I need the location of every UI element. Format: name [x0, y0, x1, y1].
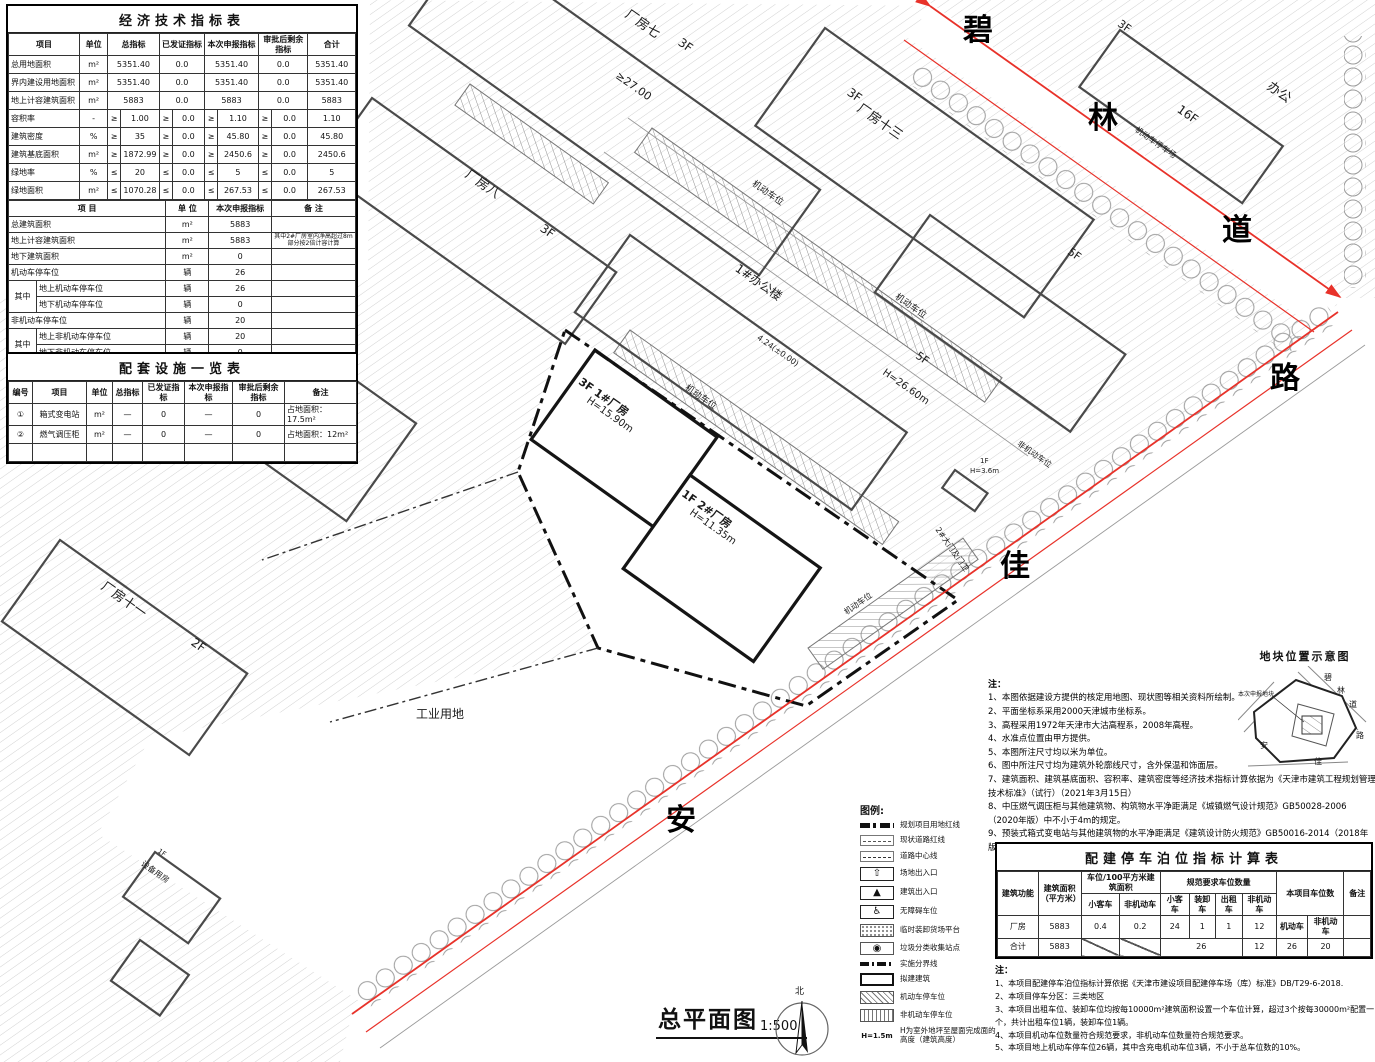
legend-symbol-dock-icon [860, 924, 894, 937]
table-cell: 辆 [166, 297, 209, 313]
table-cell: — [185, 404, 233, 426]
table-cell: 总建筑面积 [9, 217, 166, 233]
table-cell: 0.0 [271, 164, 308, 182]
table-cell: m² [80, 74, 108, 92]
table-cell: 0.0 [172, 128, 204, 146]
table-cell: ≥ [205, 110, 218, 128]
table-cell [271, 265, 355, 281]
table-cell: 0.0 [258, 74, 308, 92]
table-cell [271, 217, 355, 233]
note-item: 1、本项目配建停车泊位指标计算依据《天津市建设项目配建停车场（库）标准》DB/T… [995, 978, 1375, 991]
table-cell [113, 444, 143, 462]
table-cell: 0.0 [258, 92, 308, 110]
legend-item-label: 机动车停车位 [900, 993, 1002, 1002]
table-header-cell: 编号 [9, 382, 33, 404]
legend-symbol-centerline-icon [860, 851, 894, 862]
table-row: 建筑功能建筑面积（平方米）车位/100平方米建筑面积规范要求车位数量本项目车位数… [998, 872, 1371, 894]
table-row: 绿地面积m²≤1070.28≤0.0≤267.53≤0.0267.53 [9, 182, 356, 200]
table-cell [1120, 938, 1161, 956]
table-cell: 267.53 [308, 182, 356, 200]
table-cell: 5 [308, 164, 356, 182]
legend-item: 道路中心线 [860, 851, 1002, 862]
table-header-cell: 已发证指标 [159, 34, 204, 56]
table-row: 非机动车停车位辆20 [9, 313, 356, 329]
legend-items: 规划项目用地红线现状道路红线道路中心线⇧场地出入口▲建筑出入口♿无障碍车位临时装… [860, 821, 1002, 1045]
legend-item-label: 拟建建筑 [900, 975, 1002, 984]
table-cell: 12 [1242, 938, 1277, 956]
table-cell: 燃气调压柜 [33, 426, 87, 444]
table-header-cell: 合计 [308, 34, 356, 56]
map-label: 佳 [1314, 758, 1322, 766]
table-row: 绿地率%≤20≤0.0≤5≤0.05 [9, 164, 356, 182]
table-cell: 5 [218, 164, 259, 182]
table-cell: 容积率 [9, 110, 80, 128]
table-header-cell: 单 位 [166, 201, 209, 217]
table-cell: 0 [233, 426, 285, 444]
legend-item: 规划项目用地红线 [860, 821, 1002, 830]
table-cell: 0.0 [271, 110, 308, 128]
table-cell: - [80, 110, 108, 128]
table-cell: 界内建设用地面积 [9, 74, 80, 92]
table-cell: 1 [1189, 916, 1215, 938]
parking-notes: 注： 1、本项目配建停车泊位指标计算依据《天津市建设项目配建停车场（库）标准》D… [995, 964, 1375, 1055]
table-cell: 20 [209, 313, 272, 329]
table-header-cell: 本项目车位数 [1277, 872, 1344, 916]
table-row: 建筑基底面积m²≥1872.99≥0.0≥2450.6≥0.02450.6 [9, 146, 356, 164]
table-cell: 1 [1216, 916, 1242, 938]
table-cell: m² [166, 233, 209, 249]
table-cell: 2450.6 [308, 146, 356, 164]
table-header-cell: 本次申报指标 [205, 34, 259, 56]
table-cell: 占地面积：17.5m² [285, 404, 357, 426]
table-cell: 5351.40 [308, 74, 356, 92]
table-cell: m² [80, 182, 108, 200]
table-header-cell: 出租车 [1216, 894, 1242, 916]
legend-symbol-entry-icon: ⇧ [860, 867, 894, 881]
table-row: 总建筑面积m²5883 [9, 217, 356, 233]
legend-item-label: 道路中心线 [900, 852, 1002, 861]
table-cell: 0 [143, 426, 185, 444]
note-item: 4、本项目机动车位数量符合规范要求，非机动车位数量符合规范要求。 [995, 1030, 1375, 1043]
table-header-cell: 建筑面积（平方米） [1038, 872, 1081, 916]
table-row: 其中地上非机动车停车位辆20 [9, 329, 356, 345]
table-cell: 箱式变电站 [33, 404, 87, 426]
table-cell: 地下建筑面积 [9, 249, 166, 265]
table-cell: ② [9, 426, 33, 444]
note-item: 3、本项目出租车位、装卸车位均按每10000m²建筑面积设置一个车位计算，超过3… [995, 1004, 1375, 1030]
legend-item-label: 实施分界线 [900, 960, 1002, 969]
table-cell: 35 [121, 128, 160, 146]
table-cell: 地上计容建筑面积 [9, 92, 80, 110]
table-cell [233, 444, 285, 462]
table-cell: 0.0 [159, 92, 204, 110]
table-cell: 0 [143, 404, 185, 426]
north-compass-icon [772, 993, 832, 1061]
table-cell: ≥ [108, 146, 121, 164]
table-header-cell: 装卸车 [1189, 894, 1215, 916]
table-cell: ≥ [159, 110, 172, 128]
note-item: 2、本项目停车分区：三类地区 [995, 991, 1375, 1004]
legend-item: 实施分界线 [860, 960, 1002, 969]
table-header-cell: 项目 [9, 34, 80, 56]
table-header-cell: 本次申报指标 [209, 201, 272, 217]
map-label: 本次申报地块 [1238, 692, 1274, 698]
table-cell [33, 444, 87, 462]
table-cell: 45.80 [308, 128, 356, 146]
legend-item-label: 现状道路红线 [900, 836, 1002, 845]
parking-notes-label: 注： [995, 964, 1375, 978]
table-row: 编号项目单位总指标已发证指标本次申报指标审批后剩余指标备注 [9, 382, 357, 404]
table-header-cell: 审批后剩余指标 [258, 34, 308, 56]
table-cell: 267.53 [218, 182, 259, 200]
table-cell: 0.0 [172, 164, 204, 182]
table-header-cell: 本次申报指标 [185, 382, 233, 404]
table-cell: 26 [1161, 938, 1243, 956]
declared-indicator-table: 项 目单 位本次申报指标备 注总建筑面积m²5883地上计容建筑面积m²5883… [8, 200, 356, 361]
parking-table-title: 配建停车泊位指标计算表 [997, 844, 1371, 871]
table-cell: ≤ [108, 182, 121, 200]
inset-labels: 本次申报地块碧林道路佳安 [1238, 666, 1372, 778]
table-cell: 20 [209, 329, 272, 345]
table-cell: 5883 [205, 92, 259, 110]
table-cell: ≤ [205, 164, 218, 182]
table-cell: 26 [1277, 938, 1308, 956]
site-plan-sheet: 碧林道路佳安厂房七3F厂房八3F厂房九3F3F厂房十三1#办公楼5FH=26.6… [0, 0, 1375, 1062]
table-cell [1344, 938, 1371, 956]
note-item: 8、中压燃气调压柜与其他建筑物、构筑物水平净距满足《城镇燃气设计规范》GB500… [988, 801, 1375, 828]
table-cell: 绿地率 [9, 164, 80, 182]
table-cell [185, 444, 233, 462]
table-row: 界内建设用地面积m²5351.400.05351.400.05351.40 [9, 74, 356, 92]
table-cell: ≥ [258, 110, 271, 128]
table-cell: m² [87, 404, 113, 426]
table-row: 合计588326122620 [998, 938, 1371, 956]
map-label: 道 [1349, 701, 1357, 709]
table-cell: ≤ [205, 182, 218, 200]
table-cell: 5883 [209, 217, 272, 233]
table-cell: 0 [209, 249, 272, 265]
legend-item: ⇧场地出入口 [860, 867, 1002, 881]
table-cell: ≤ [258, 182, 271, 200]
table-cell: 5883 [108, 92, 160, 110]
legend-symbol-htext-icon: H=1.5m [860, 1029, 894, 1042]
table-cell [9, 444, 33, 462]
table-row: 建筑密度%≥35≥0.0≥45.80≥0.045.80 [9, 128, 356, 146]
legend-item-label: 非机动车停车位 [900, 1011, 1002, 1020]
table-header-cell: 已发证指标 [143, 382, 185, 404]
table-cell: 0 [209, 297, 272, 313]
table-cell: % [80, 128, 108, 146]
table-cell [87, 444, 113, 462]
parking-table: 建筑功能建筑面积（平方米）车位/100平方米建筑面积规范要求车位数量本项目车位数… [997, 871, 1371, 957]
table-header-cell: 小客车 [1161, 894, 1190, 916]
table-cell: m² [80, 92, 108, 110]
table-cell: ≥ [205, 128, 218, 146]
table-row [9, 444, 357, 462]
map-label: 林 [1337, 687, 1345, 695]
table-cell: 0.0 [271, 146, 308, 164]
table-cell: 非机动车停车位 [9, 313, 166, 329]
table-cell: ≤ [108, 164, 121, 182]
table-cell: 1.00 [121, 110, 160, 128]
table-row: 其中地上机动车停车位辆26 [9, 281, 356, 297]
legend-item-label: H为室外地坪至屋面完成面的高度（建筑高度） [900, 1027, 1002, 1044]
table-cell [271, 281, 355, 297]
table-cell: 5351.40 [308, 56, 356, 74]
table-cell: 0.0 [159, 56, 204, 74]
facilities-table: 编号项目单位总指标已发证指标本次申报指标审批后剩余指标备注①箱式变电站m²—0—… [8, 381, 357, 462]
table-cell: 20 [1307, 938, 1344, 956]
table-cell: ≥ [159, 146, 172, 164]
table-row: 容积率-≥1.00≥0.0≥1.10≥0.01.10 [9, 110, 356, 128]
table-cell: — [185, 426, 233, 444]
inset-map: 本次申报地块碧林道路佳安 [1238, 666, 1372, 778]
facilities-table-title: 配套设施一览表 [8, 354, 356, 381]
table-cell: ≥ [205, 146, 218, 164]
table-header-cell: 备注 [1344, 872, 1371, 916]
table-cell: ≥ [108, 128, 121, 146]
table-cell: 1.10 [308, 110, 356, 128]
table-header-cell: 建筑功能 [998, 872, 1039, 916]
table-cell: 12 [1242, 916, 1277, 938]
table-row: 地下建筑面积m²0 [9, 249, 356, 265]
map-label: 路 [1356, 732, 1364, 740]
table-cell [1344, 916, 1371, 938]
legend-item-label: 临时装卸货场平台 [900, 926, 1002, 935]
table-cell: 5351.40 [108, 56, 160, 74]
table-cell: 0.0 [258, 56, 308, 74]
legend-item-label: 建筑出入口 [900, 888, 1002, 897]
table-cell: 0.0 [271, 128, 308, 146]
table-row: 项 目单 位本次申报指标备 注 [9, 201, 356, 217]
table-cell: 5351.40 [205, 74, 259, 92]
table-cell: 5883 [1038, 938, 1081, 956]
table-cell [271, 329, 355, 345]
table-header-cell: 备 注 [271, 201, 355, 217]
table-cell: 建筑基底面积 [9, 146, 80, 164]
table-header-cell: 备注 [285, 382, 357, 404]
legend-symbol-entry-icon: ▲ [860, 886, 894, 900]
table-cell: 其中 [9, 281, 37, 313]
table-cell: ≥ [159, 128, 172, 146]
table-cell: 26 [209, 265, 272, 281]
table-cell: m² [80, 146, 108, 164]
table-row: 总用地面积m²5351.400.05351.400.05351.40 [9, 56, 356, 74]
table-cell: m² [166, 217, 209, 233]
legend-symbol-roadred-icon [860, 835, 894, 846]
table-cell: 5351.40 [108, 74, 160, 92]
table-cell: 0.0 [172, 110, 204, 128]
table-cell: 合计 [998, 938, 1039, 956]
table-header-cell: 审批后剩余指标 [233, 382, 285, 404]
legend-symbol-carpark-icon [860, 991, 894, 1004]
legend-item: ◉垃圾分类收集站点 [860, 942, 1002, 955]
table-row: 地上计容建筑面积m²5883其中2#厂房室内净高超过8m部分按2倍计容计算 [9, 233, 356, 249]
table-cell: 辆 [166, 281, 209, 297]
table-cell: 0.2 [1120, 916, 1161, 938]
table-cell: 辆 [166, 329, 209, 345]
table-cell: 0.0 [159, 74, 204, 92]
table-cell: 5883 [1038, 916, 1081, 938]
legend-item-label: 场地出入口 [900, 869, 1002, 878]
table-cell: % [80, 164, 108, 182]
table-cell: 5883 [209, 233, 272, 249]
legend-symbol-redbound-icon [860, 823, 894, 828]
table-cell [1081, 938, 1120, 956]
map-label: 碧 [1324, 674, 1332, 682]
legend-symbol-proposed-icon [860, 973, 894, 986]
table-header-cell: 总指标 [108, 34, 160, 56]
table-row: 项目单位总指标已发证指标本次申报指标审批后剩余指标合计 [9, 34, 356, 56]
table-cell: ≤ [159, 164, 172, 182]
legend-item: 拟建建筑 [860, 973, 1002, 986]
table-cell: 辆 [166, 313, 209, 329]
note-item: 7、建筑面积、建筑基底面积、容积率、建筑密度等经济技术指标计算依据为《天津市建筑… [988, 774, 1375, 801]
location-inset: 地块位置示意图 本次申报地块碧林道路佳安 [1238, 648, 1372, 778]
table-cell: 地下机动车停车位 [37, 297, 166, 313]
table-cell: ① [9, 404, 33, 426]
parking-notes-list: 1、本项目配建停车泊位指标计算依据《天津市建设项目配建停车场（库）标准》DB/T… [995, 978, 1375, 1055]
legend-symbol-entry-icon: ♿ [860, 905, 894, 919]
table-row: ①箱式变电站m²—0—0占地面积：17.5m² [9, 404, 357, 426]
table-cell: 2450.6 [218, 146, 259, 164]
table-cell: 辆 [166, 265, 209, 281]
table-header-cell: 单位 [80, 34, 108, 56]
table-cell [143, 444, 185, 462]
table-header-cell: 车位/100平方米建筑面积 [1081, 872, 1160, 894]
table-cell: 26 [209, 281, 272, 297]
legend-symbol-phase-icon [860, 962, 894, 966]
table-cell [285, 444, 357, 462]
table-cell: m² [87, 426, 113, 444]
legend-symbol-bikepark-icon [860, 1009, 894, 1022]
facilities-panel: 配套设施一览表 编号项目单位总指标已发证指标本次申报指标审批后剩余指标备注①箱式… [6, 352, 358, 464]
table-header-cell: 项 目 [9, 201, 166, 217]
table-cell: ≥ [258, 128, 271, 146]
table-cell: 1872.99 [121, 146, 160, 164]
table-cell: 占地面积：12m² [285, 426, 357, 444]
parking-panel: 配建停车泊位指标计算表 建筑功能建筑面积（平方米）车位/100平方米建筑面积规范… [995, 842, 1373, 959]
legend: 图例: 规划项目用地红线现状道路红线道路中心线⇧场地出入口▲建筑出入口♿无障碍车… [860, 802, 1002, 1050]
table-cell: 0.0 [172, 182, 204, 200]
legend-item-label: 规划项目用地红线 [900, 821, 1002, 830]
table-header-cell: 总指标 [113, 382, 143, 404]
table-cell: ≤ [258, 164, 271, 182]
table-cell: 1070.28 [121, 182, 160, 200]
economic-table-title: 经济技术指标表 [8, 6, 356, 33]
legend-item-label: 无障碍车位 [900, 907, 1002, 916]
economic-indicator-panel: 经济技术指标表 项目单位总指标已发证指标本次申报指标审批后剩余指标合计总用地面积… [6, 4, 358, 363]
table-cell: 0 [233, 404, 285, 426]
legend-item: ▲建筑出入口 [860, 886, 1002, 900]
table-cell: 0.0 [271, 182, 308, 200]
legend-symbol-waste-icon: ◉ [860, 942, 894, 955]
table-cell: 0.0 [172, 146, 204, 164]
drawing-title: 总平面图 [658, 1000, 758, 1034]
table-header-cell: 规范要求车位数量 [1161, 872, 1277, 894]
legend-item: ♿无障碍车位 [860, 905, 1002, 919]
table-cell: 建筑密度 [9, 128, 80, 146]
table-cell: 45.80 [218, 128, 259, 146]
table-row: 地上计容建筑面积m²58830.058830.05883 [9, 92, 356, 110]
legend-item: 机动车停车位 [860, 991, 1002, 1004]
note-item: 5、本项目地上机动车停车位26辆，其中含充电机动车位3辆，不小于总车位数的10%… [995, 1042, 1375, 1055]
economic-indicator-table: 项目单位总指标已发证指标本次申报指标审批后剩余指标合计总用地面积m²5351.4… [8, 33, 356, 200]
table-cell: m² [80, 56, 108, 74]
map-label: 安 [1260, 742, 1268, 750]
table-header-cell: 非机动车 [1307, 916, 1344, 938]
table-cell: 绿地面积 [9, 182, 80, 200]
table-cell: 地上非机动车停车位 [37, 329, 166, 345]
table-cell [271, 313, 355, 329]
table-header-cell: 单位 [87, 382, 113, 404]
table-cell: m² [166, 249, 209, 265]
table-cell: 1.10 [218, 110, 259, 128]
table-header-cell: 项目 [33, 382, 87, 404]
legend-item: 现状道路红线 [860, 835, 1002, 846]
table-header-cell: 机动车 [1277, 916, 1308, 938]
legend-item: H=1.5mH为室外地坪至屋面完成面的高度（建筑高度） [860, 1027, 1002, 1044]
table-cell: 其中2#厂房室内净高超过8m部分按2倍计容计算 [271, 233, 355, 249]
legend-item: 临时装卸货场平台 [860, 924, 1002, 937]
table-cell: 5351.40 [205, 56, 259, 74]
table-row: 厂房58830.40.2241112机动车非机动车 [998, 916, 1371, 938]
table-cell: 总用地面积 [9, 56, 80, 74]
legend-label: 图例: [860, 802, 1002, 817]
table-cell: 24 [1161, 916, 1190, 938]
table-header-cell: 非机动车 [1242, 894, 1277, 916]
table-cell: 0.4 [1081, 916, 1120, 938]
table-cell: 机动车停车位 [9, 265, 166, 281]
table-header-cell: 小客车 [1081, 894, 1120, 916]
table-cell: — [113, 404, 143, 426]
table-cell [271, 297, 355, 313]
table-cell: 5883 [308, 92, 356, 110]
table-cell: ≥ [258, 146, 271, 164]
legend-item-label: 垃圾分类收集站点 [900, 944, 1002, 953]
table-row: 机动车停车位辆26 [9, 265, 356, 281]
table-cell [271, 249, 355, 265]
table-cell: 20 [121, 164, 160, 182]
legend-item: 非机动车停车位 [860, 1009, 1002, 1022]
table-cell: ≥ [108, 110, 121, 128]
table-cell: 地上机动车停车位 [37, 281, 166, 297]
table-cell: 地上计容建筑面积 [9, 233, 166, 249]
table-row: 地下机动车停车位辆0 [9, 297, 356, 313]
table-cell: — [113, 426, 143, 444]
table-cell: ≤ [159, 182, 172, 200]
table-header-cell: 非机动车 [1120, 894, 1161, 916]
table-row: ②燃气调压柜m²—0—0占地面积：12m² [9, 426, 357, 444]
table-cell: 厂房 [998, 916, 1039, 938]
inset-title: 地块位置示意图 [1238, 648, 1372, 664]
